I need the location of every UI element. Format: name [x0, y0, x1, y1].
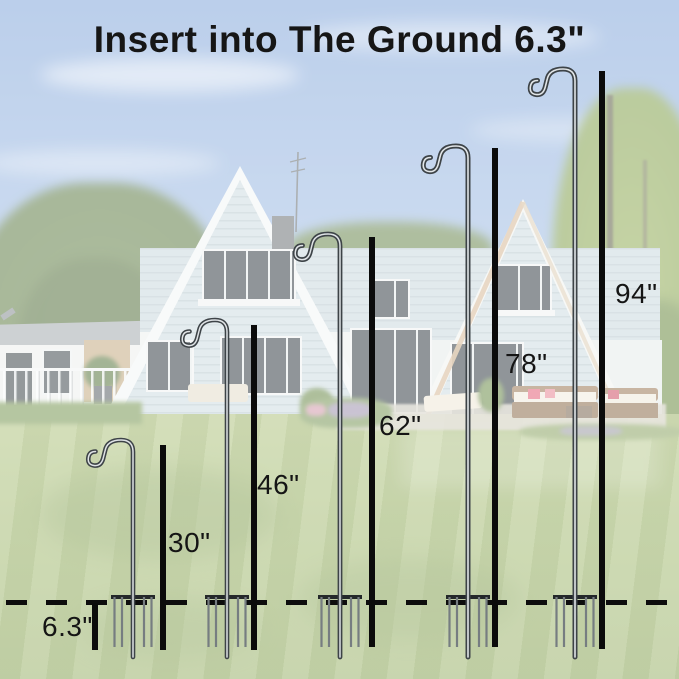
measure-line-62: [369, 237, 375, 647]
depth-label: 6.3": [42, 613, 93, 641]
height-label-30: 30": [168, 529, 211, 557]
measure-line-30: [160, 445, 166, 650]
height-label-78: 78": [505, 350, 548, 378]
shepherd-hook-62: [288, 230, 368, 660]
measure-line-78: [492, 148, 498, 647]
page-title: Insert into The Ground 6.3": [0, 21, 679, 58]
depth-marker-line: [92, 603, 98, 650]
height-label-46: 46": [257, 471, 300, 499]
measure-line-94: [599, 71, 605, 649]
shepherd-hook-78: [416, 142, 496, 660]
height-label-94: 94": [615, 280, 658, 308]
height-label-62: 62": [379, 412, 422, 440]
shepherd-hook-46: [175, 316, 255, 660]
product-infographic: 6.3" 30" 46" 62" 78" 94" Insert into The…: [0, 0, 679, 679]
